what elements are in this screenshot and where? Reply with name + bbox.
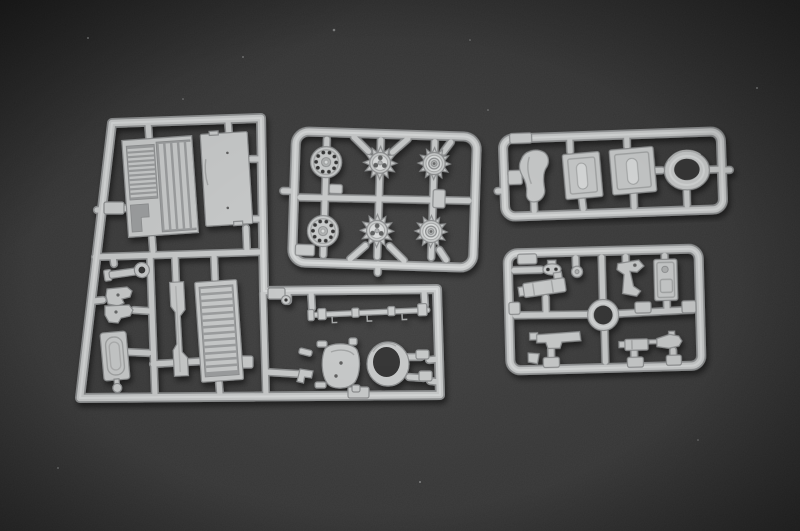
photo-stage — [0, 0, 800, 531]
sprue-photo — [0, 0, 800, 531]
vignette — [0, 0, 800, 531]
